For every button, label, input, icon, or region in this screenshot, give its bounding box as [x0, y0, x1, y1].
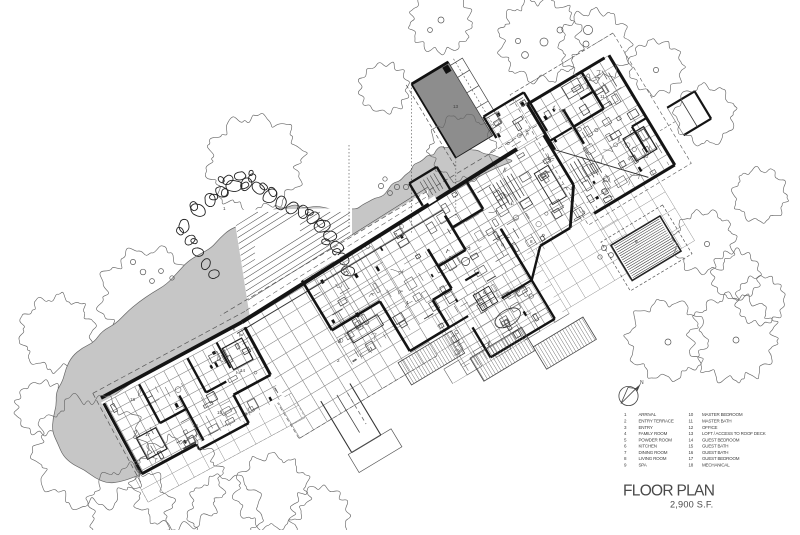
svg-text:SPA: SPA [639, 462, 647, 467]
svg-text:ARRIVAL: ARRIVAL [639, 412, 657, 417]
svg-text:GUEST BATH: GUEST BATH [702, 450, 728, 455]
svg-text:5: 5 [449, 255, 452, 260]
svg-text:4: 4 [406, 300, 409, 305]
svg-text:N: N [640, 380, 644, 386]
svg-text:MASTER BATH: MASTER BATH [702, 419, 731, 424]
svg-text:10: 10 [643, 154, 649, 159]
svg-text:18: 18 [130, 397, 136, 402]
svg-text:2,900 S.F.: 2,900 S.F. [670, 500, 713, 510]
svg-text:9: 9 [635, 239, 638, 244]
svg-text:MASTER BEDROOM: MASTER BEDROOM [702, 412, 743, 417]
svg-text:MECHANICAL: MECHANICAL [702, 462, 730, 467]
svg-text:16: 16 [193, 423, 199, 428]
svg-text:DINING ROOM: DINING ROOM [639, 450, 668, 455]
svg-text:GUEST BATH: GUEST BATH [702, 444, 728, 449]
svg-text:GUEST BEDROOM: GUEST BEDROOM [702, 437, 740, 442]
svg-text:2: 2 [337, 358, 340, 363]
svg-text:11: 11 [689, 419, 694, 424]
svg-text:1: 1 [223, 206, 226, 211]
svg-text:POWDER ROOM: POWDER ROOM [639, 437, 673, 442]
svg-text:OFFICE: OFFICE [702, 425, 717, 430]
svg-text:14: 14 [240, 368, 246, 373]
svg-text:18: 18 [689, 462, 694, 467]
svg-text:13: 13 [689, 431, 694, 436]
svg-text:7: 7 [508, 325, 511, 330]
svg-text:6: 6 [483, 290, 486, 295]
svg-text:11: 11 [600, 94, 605, 99]
svg-text:8: 8 [530, 239, 533, 244]
svg-text:12: 12 [689, 425, 694, 430]
svg-text:13: 13 [453, 104, 459, 109]
svg-text:LOFT / ACCESS TO ROOF DECK: LOFT / ACCESS TO ROOF DECK [702, 431, 766, 436]
svg-text:KITCHEN: KITCHEN [639, 444, 657, 449]
svg-text:14: 14 [689, 437, 694, 442]
svg-text:17: 17 [145, 432, 151, 437]
svg-text:LIVING ROOM: LIVING ROOM [639, 456, 667, 461]
svg-text:17: 17 [689, 456, 694, 461]
svg-text:10: 10 [689, 412, 694, 417]
svg-text:12: 12 [561, 108, 567, 113]
svg-text:3: 3 [468, 246, 471, 251]
svg-text:GUEST BEDROOM: GUEST BEDROOM [702, 456, 740, 461]
svg-text:16: 16 [689, 450, 694, 455]
svg-text:ENTRY: ENTRY [639, 425, 653, 430]
svg-text:15: 15 [217, 410, 223, 415]
svg-text:FAMILY ROOM: FAMILY ROOM [639, 431, 668, 436]
svg-text:FLOOR PLAN: FLOOR PLAN [623, 483, 714, 500]
svg-text:ENTRY TERRACE: ENTRY TERRACE [639, 419, 674, 424]
svg-text:15: 15 [689, 444, 694, 449]
